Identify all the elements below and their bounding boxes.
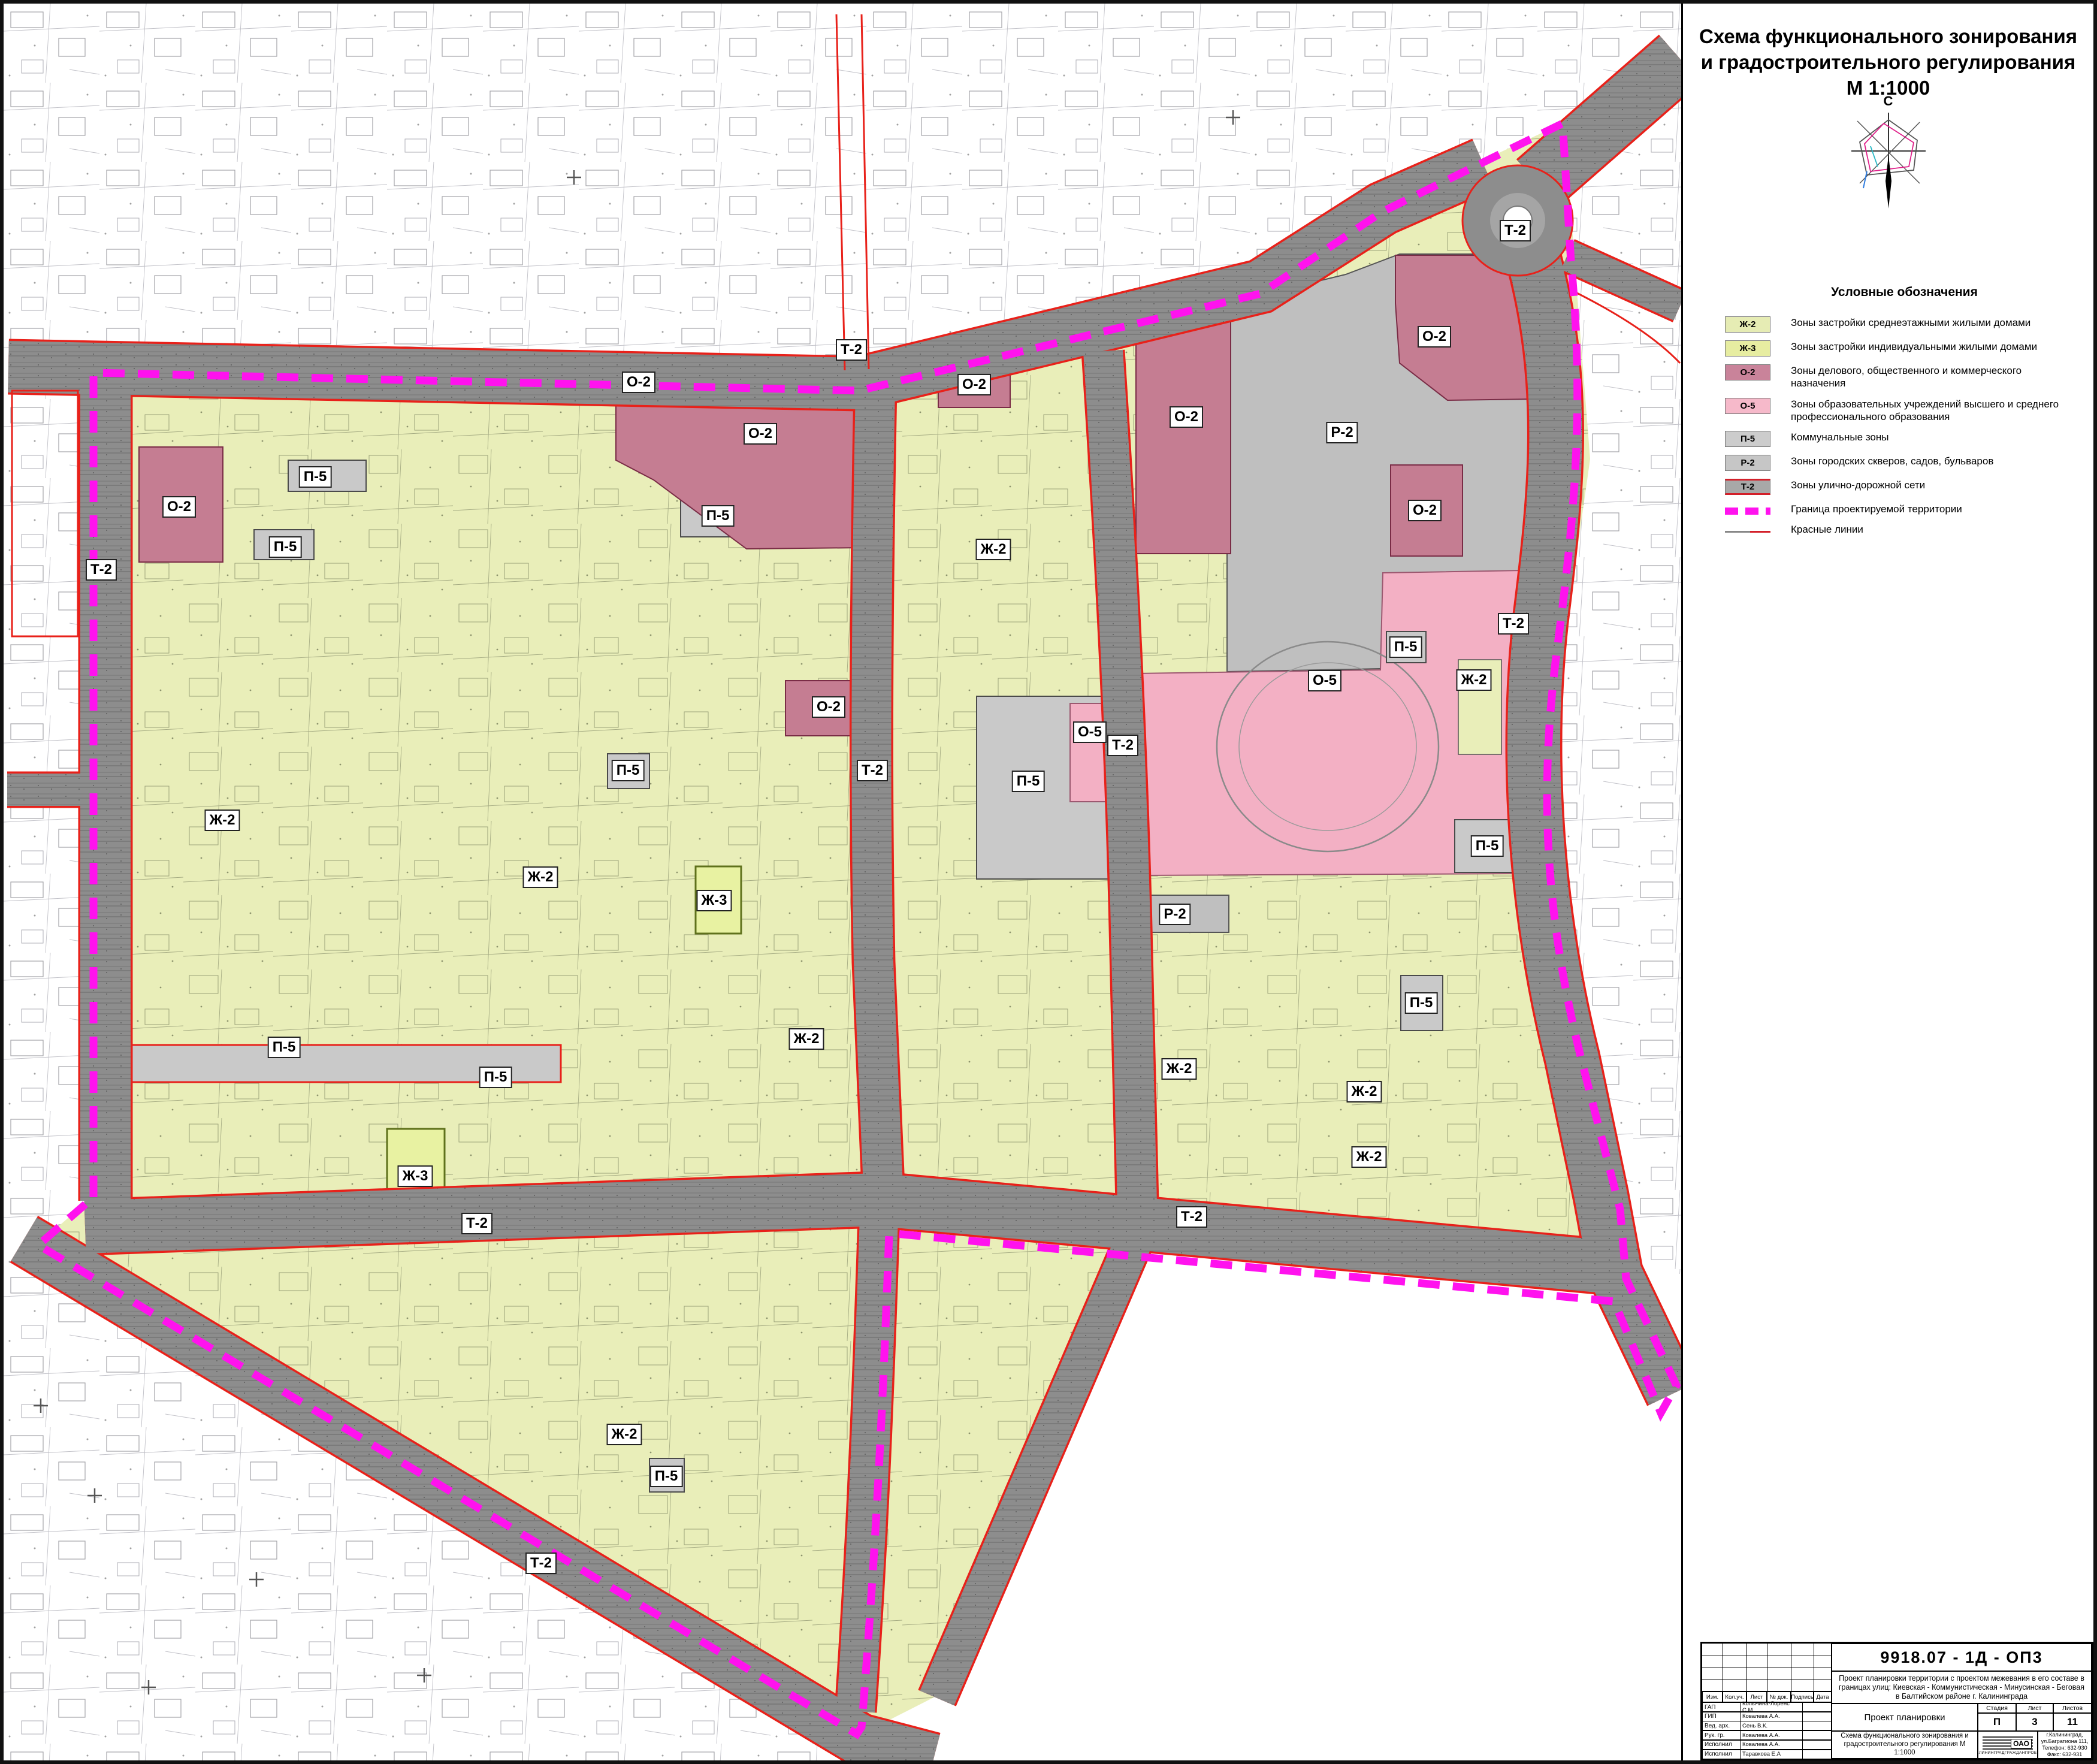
legend-items: Ж-2Зоны застройки среднеэтажными жилыми …: [1725, 316, 2084, 536]
sheet-title: Схема функционального зонирования и град…: [1695, 24, 2081, 101]
north-arrow-icon: [1844, 109, 1933, 211]
stamp-name: Таравкова Е.А: [1740, 1750, 1803, 1759]
org-abbr: ОАО: [2011, 1739, 2032, 1748]
sheet-value: 3: [2016, 1713, 2053, 1731]
org-address: г.Калининград,ул.Багратиона 111,Телефон:…: [2038, 1731, 2092, 1759]
legend-swatch: Ж-3: [1725, 340, 1770, 357]
stamp-role: Исполнил: [1702, 1740, 1741, 1750]
org-address-line: ул.Багратиона 111,: [2041, 1738, 2089, 1745]
stamp-role: Исполнил: [1702, 1750, 1741, 1759]
sheet-label: Лист: [2016, 1703, 2053, 1713]
legend-item: Ж-3Зоны застройки индивидуальными жилыми…: [1725, 340, 2084, 357]
stamp-name: Ковалева А.А.: [1740, 1730, 1803, 1740]
roundabout: [1463, 165, 1573, 276]
legend-swatch: Ж-2: [1725, 316, 1770, 333]
doc-number: 9918.07 - 1Д - ОП3: [1832, 1644, 2092, 1671]
legend-label: Зоны улично-дорожной сети: [1791, 479, 1925, 491]
stamp-name: Копычина-Лоренс С.М.: [1740, 1702, 1803, 1712]
legend-label: Зоны застройки индивидуальными жилыми до…: [1791, 340, 2037, 353]
zone-p5-strip: [113, 1045, 561, 1082]
stamp-role: Рук. гр.: [1702, 1730, 1741, 1740]
legend-swatch: О-2: [1725, 364, 1770, 380]
drawing-sheet: Т-2Т-2Т-2Т-2Т-2Т-2Т-2Т-2Т-2О-2О-2О-2О-2О…: [0, 0, 2097, 1764]
sheets-value: 11: [2053, 1713, 2092, 1731]
title-block: Изм.Кол.уч.Лист№ док.ПодписьДата ГАПКопы…: [1700, 1642, 2093, 1760]
project-description: Проект планировки территории с проектом …: [1832, 1671, 2092, 1703]
org-address-line: г.Калининград,: [2046, 1732, 2083, 1738]
legend-item: Граница проектируемой территории: [1725, 503, 2084, 515]
legend-label: Красные линии: [1791, 523, 1863, 536]
zone-r2-strip: [1139, 895, 1229, 932]
stamp-signature: [1802, 1730, 1832, 1740]
legend-label: Зоны образовательных учреждений высшего …: [1791, 398, 2072, 424]
legend-label: Зоны делового, общественного и коммерчес…: [1791, 364, 2072, 390]
org-logo: ОАО КАЛИНИНГРАДГРАЖДАНПРОЕКТ: [1978, 1731, 2038, 1759]
stamp-column-header: Изм.: [1702, 1691, 1723, 1702]
stage-value: П: [1978, 1713, 2016, 1731]
stamp-name: Ковалева А.А.: [1740, 1740, 1803, 1750]
sheets-label: Листов: [2053, 1703, 2092, 1713]
org-logo-hatch: ОАО: [1983, 1735, 2033, 1750]
legend-item: О-5Зоны образовательных учреждений высше…: [1725, 398, 2084, 424]
right-panel: Схема функционального зонирования и град…: [1681, 4, 2093, 1760]
stamp-role-row: Рук. гр.Ковалева А.А.: [1702, 1730, 1832, 1740]
stamp-role-row: ГАПКопычина-Лоренс С.М.: [1702, 1702, 1832, 1712]
drawing-title: Схема функционального зонирования и град…: [1832, 1731, 1978, 1759]
stamp-name: Ковалева А.А.: [1740, 1712, 1803, 1721]
stamp-signature: [1802, 1750, 1832, 1759]
legend-label: Зоны застройки среднеэтажными жилыми дом…: [1791, 316, 2030, 329]
stamp-role-row: ИсполнилКовалева А.А.: [1702, 1740, 1832, 1750]
legend-item: Т-2Зоны улично-дорожной сети: [1725, 479, 2084, 495]
stamp-role: Вед. арх.: [1702, 1721, 1741, 1730]
legend-label: Зоны городских скверов, садов, бульваров: [1791, 455, 1993, 467]
legend-label: Коммунальные зоны: [1791, 431, 1889, 443]
org-address-line: Телефон: 632-930: [2042, 1745, 2087, 1751]
legend-swatch: Р-2: [1725, 455, 1770, 471]
zoning-map: [4, 4, 1681, 1760]
stamp-signature: [1802, 1712, 1832, 1721]
stamp-role-row: ИсполнилТаравкова Е.А: [1702, 1750, 1832, 1759]
stamp-signature: [1802, 1740, 1832, 1750]
legend-swatch: П-5: [1725, 431, 1770, 447]
legend-item: Р-2Зоны городских скверов, садов, бульва…: [1725, 455, 2084, 471]
stamp-role-row: Вед. арх.Сень В.К.: [1702, 1721, 1832, 1730]
legend-swatch: О-5: [1725, 398, 1770, 414]
legend-swatch: [1725, 508, 1770, 515]
legend-swatch: [1725, 531, 1770, 533]
stamp-role: ГАП: [1702, 1702, 1741, 1712]
stamp-column-header: Дата: [1814, 1691, 1832, 1702]
title-line-2: и градостроительного регулирования: [1701, 51, 2075, 73]
stamp-role-row: ГИПКовалева А.А.: [1702, 1712, 1832, 1721]
org-address-line: Факс: 632-931: [2047, 1751, 2082, 1758]
legend-item: П-5Коммунальные зоны: [1725, 431, 2084, 447]
stamp-signature: [1802, 1721, 1832, 1730]
project-type: Проект планировки: [1832, 1703, 1978, 1731]
zone-zh2-notch: [1458, 660, 1501, 754]
legend-label: Граница проектируемой территории: [1791, 503, 1962, 515]
north-arrow: С: [1683, 93, 2093, 214]
legend-item: Красные линии: [1725, 523, 2084, 536]
org-name: КАЛИНИНГРАДГРАЖДАНПРОЕКТ: [1978, 1751, 2038, 1755]
legend-item: Ж-2Зоны застройки среднеэтажными жилыми …: [1725, 316, 2084, 333]
legend: Условные обозначения Ж-2Зоны застройки с…: [1725, 285, 2084, 544]
legend-title: Условные обозначения: [1725, 285, 2084, 300]
stamp-name: Сень В.К.: [1740, 1721, 1803, 1730]
legend-item: О-2Зоны делового, общественного и коммер…: [1725, 364, 2084, 390]
legend-swatch: Т-2: [1725, 479, 1770, 495]
stamp-signature: [1802, 1702, 1832, 1712]
north-label: С: [1683, 93, 2093, 109]
stamp-role: ГИП: [1702, 1712, 1741, 1721]
title-line-1: Схема функционального зонирования: [1699, 25, 2077, 47]
stage-label: Стадия: [1978, 1703, 2016, 1713]
